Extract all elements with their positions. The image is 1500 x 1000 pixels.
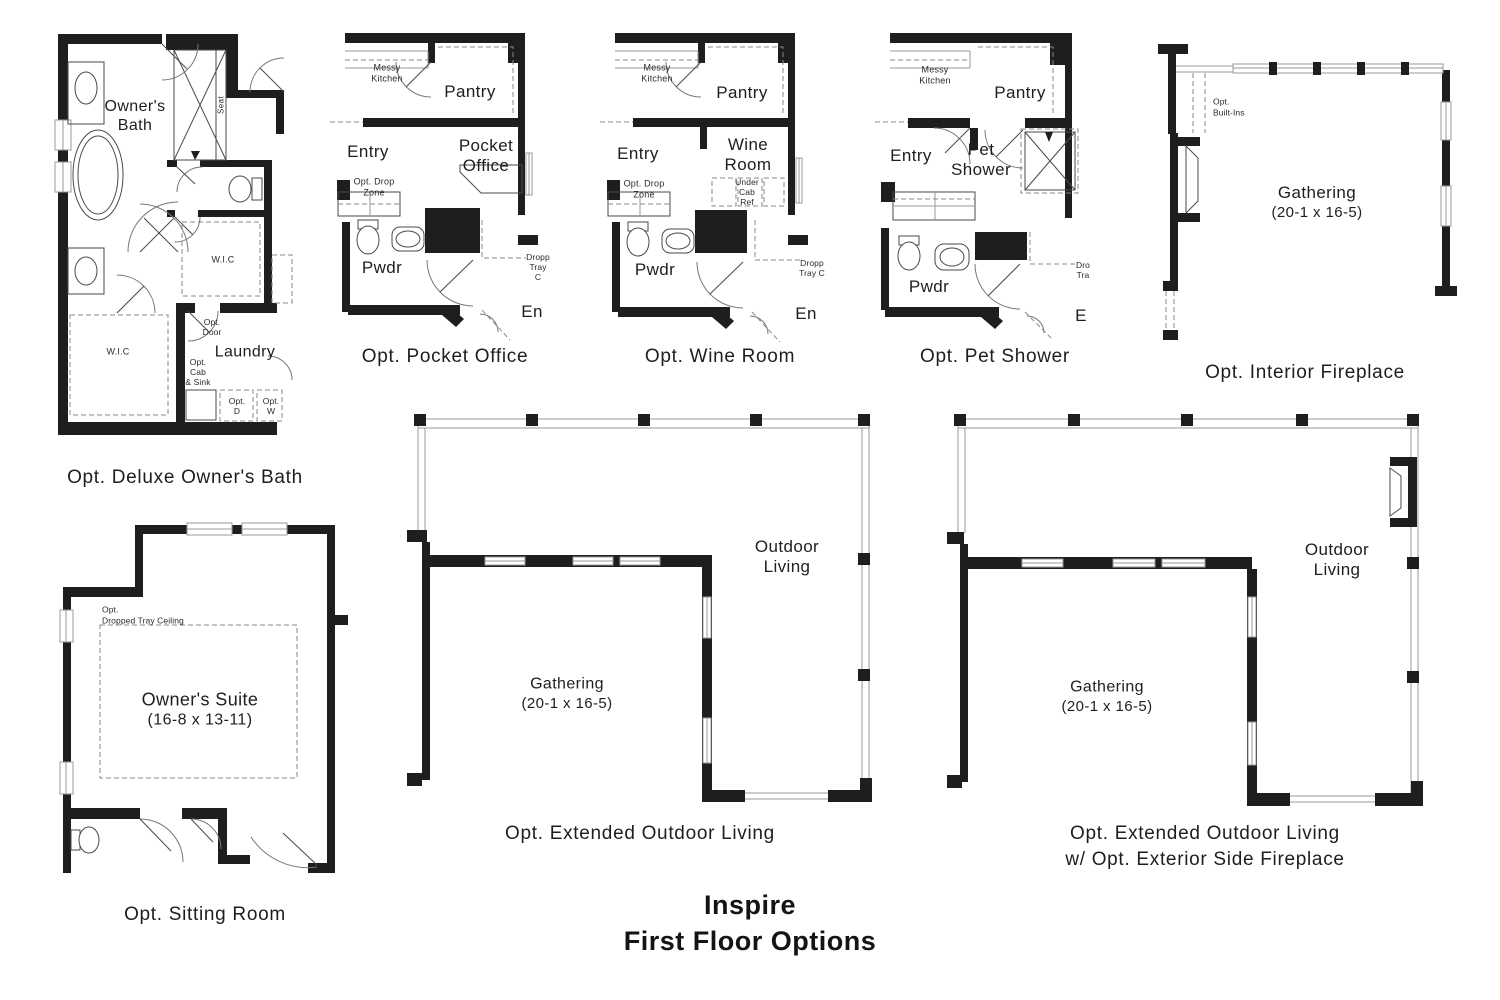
toilet [898, 236, 920, 270]
plan-sitting-room: Opt. Dropped Tray Ceiling Owner's Suite … [55, 515, 355, 935]
room-label-owners-suite: Owner's Suite [142, 689, 259, 710]
top-wall-windows [1176, 62, 1443, 75]
office-window [526, 153, 532, 195]
label-opt-door: Opt. Door [203, 317, 222, 337]
room-label-outdoor-living: Outdoor Living [755, 537, 819, 577]
plan-extended-outdoor-living-fireplace: Outdoor Living Gathering (20-1 x 16-5) O… [945, 405, 1465, 880]
plan-caption-deluxe-owners-bath: Opt. Deluxe Owner's Bath [40, 465, 330, 491]
room-label-outdoor-living: Outdoor Living [1305, 540, 1369, 580]
room-label-entry: Entry [617, 144, 659, 164]
room-label-gathering: Gathering [530, 676, 604, 695]
sink [662, 229, 694, 253]
room-dims-gathering: (20-1 x 16-5) [1271, 204, 1362, 222]
label-shower-seat: Seat [216, 96, 225, 114]
toilet [627, 222, 649, 256]
plan-extended-outdoor-living: Outdoor Living Gathering (20-1 x 16-5) O… [400, 405, 880, 855]
deluxe-owners-bath-floorplan-drawing [40, 20, 330, 490]
room-label-entry-clipped: En [795, 304, 817, 324]
extended-outdoor-living-fireplace-floorplan-drawing [945, 405, 1465, 880]
room-label-pwdr: Pwdr [635, 260, 675, 280]
plan-wine-room: Messy Kitchen Pantry Entry Opt. Drop Zon… [600, 20, 840, 370]
toilet [71, 827, 99, 853]
wine-room-window [796, 158, 802, 203]
label-under-cab-ref: Under Cab Ref [735, 177, 759, 207]
room-label-gathering: Gathering [1070, 679, 1144, 698]
label-opt-cab-sink: Opt. Cab & Sink [185, 357, 210, 387]
room-label-pet-shower: Pet Shower [951, 140, 1011, 180]
sheet-title: Inspire First Floor Options [0, 888, 1500, 959]
label-opt-washer: Opt. W [263, 396, 279, 416]
gathering-windows [1022, 559, 1256, 765]
sink [392, 227, 424, 251]
drop-zone-cabinets [893, 192, 975, 220]
label-opt-dryer: Opt. D [229, 396, 245, 416]
door-dashes [1166, 291, 1174, 330]
room-label-pocket-office: Pocket Office [459, 136, 513, 176]
room-label-owners-bath: Owner's Bath [105, 98, 166, 136]
sink [935, 244, 969, 270]
label-opt-drop-zone: Opt. Drop Zone [624, 178, 665, 199]
plan-pet-shower: Messy Kitchen Pantry Entry Pet Shower Pw… [875, 20, 1115, 370]
pantry-shelves [978, 47, 1053, 114]
label-opt-built-ins: Opt. Built-Ins [1213, 96, 1245, 117]
plan-caption-wine-room: Opt. Wine Room [600, 344, 840, 370]
plan-pocket-office: Messy Kitchen Pantry Entry Opt. Drop Zon… [330, 20, 560, 370]
room-label-gathering: Gathering [1278, 183, 1356, 203]
room-label-laundry: Laundry [215, 344, 276, 363]
plan-caption-extended-outdoor-living-fireplace: Opt. Extended Outdoor Living w/ Opt. Ext… [945, 821, 1465, 872]
plan-caption-extended-outdoor-living: Opt. Extended Outdoor Living [400, 821, 880, 847]
room-label-pwdr: Pwdr [909, 277, 949, 297]
built-ins-dashes [1193, 73, 1205, 133]
pantry-shelves [438, 47, 513, 114]
exterior-side-fireplace [1390, 457, 1417, 527]
room-label-pantry: Pantry [444, 82, 496, 102]
pantry-shelves [708, 47, 783, 114]
room-label-entry: Entry [347, 142, 389, 162]
plan-caption-pocket-office: Opt. Pocket Office [330, 344, 560, 370]
tray-ceiling-dashes [1025, 232, 1075, 338]
toilet [229, 176, 262, 202]
room-label-messy-kitchen: Messy Kitchen [641, 62, 672, 83]
room-label-messy-kitchen: Messy Kitchen [371, 62, 402, 83]
label-dropped-tray-clipped: Dropp Tray C [526, 252, 550, 282]
label-dropped-tray-clipped: Dro Tra [1076, 260, 1090, 280]
label-opt-drop-zone: Opt. Drop Zone [354, 176, 395, 197]
toilet [357, 220, 379, 254]
patio-boundary [958, 419, 1418, 793]
plan-interior-fireplace: Opt. Built-Ins Gathering (20-1 x 16-5) O… [1145, 30, 1465, 390]
room-label-pantry: Pantry [716, 83, 768, 103]
label-opt-dropped-tray-ceiling: Opt. Dropped Tray Ceiling [102, 604, 184, 625]
room-label-pwdr: Pwdr [362, 258, 402, 278]
patio-door-sill [745, 793, 828, 799]
fireplace [1170, 133, 1200, 229]
door-swings [396, 62, 498, 332]
room-label-pantry: Pantry [994, 83, 1046, 103]
extended-outdoor-living-floorplan-drawing [400, 405, 880, 855]
floor-options-sheet: Owner's Bath Seat W.I.C W.I.C Laundry Op… [0, 0, 1500, 1000]
plan-caption-interior-fireplace: Opt. Interior Fireplace [1145, 360, 1465, 386]
room-label-messy-kitchen: Messy Kitchen [919, 64, 950, 85]
room-dims-owners-suite: (16-8 x 13-11) [148, 712, 253, 731]
room-label-wine-room: Wine Room [725, 135, 772, 175]
patio-door-sill [1290, 796, 1375, 802]
gathering-windows [485, 557, 711, 763]
plan-deluxe-owners-bath: Owner's Bath Seat W.I.C W.I.C Laundry Op… [40, 20, 330, 490]
soaking-tub [73, 130, 123, 220]
plan-caption-pet-shower: Opt. Pet Shower [875, 344, 1115, 370]
room-dims-gathering: (20-1 x 16-5) [1061, 698, 1152, 716]
room-label-wic-upper: W.I.C [212, 255, 235, 266]
room-label-entry: Entry [890, 146, 932, 166]
room-label-entry-clipped: En [521, 302, 543, 322]
patio-boundary [418, 419, 870, 790]
walls [58, 34, 284, 435]
room-label-entry-clipped: E [1075, 306, 1087, 326]
room-dims-gathering: (20-1 x 16-5) [521, 695, 612, 713]
label-dropped-tray-clipped: Dropp Tray C [799, 258, 825, 278]
room-label-wic-lower: W.I.C [107, 347, 130, 358]
